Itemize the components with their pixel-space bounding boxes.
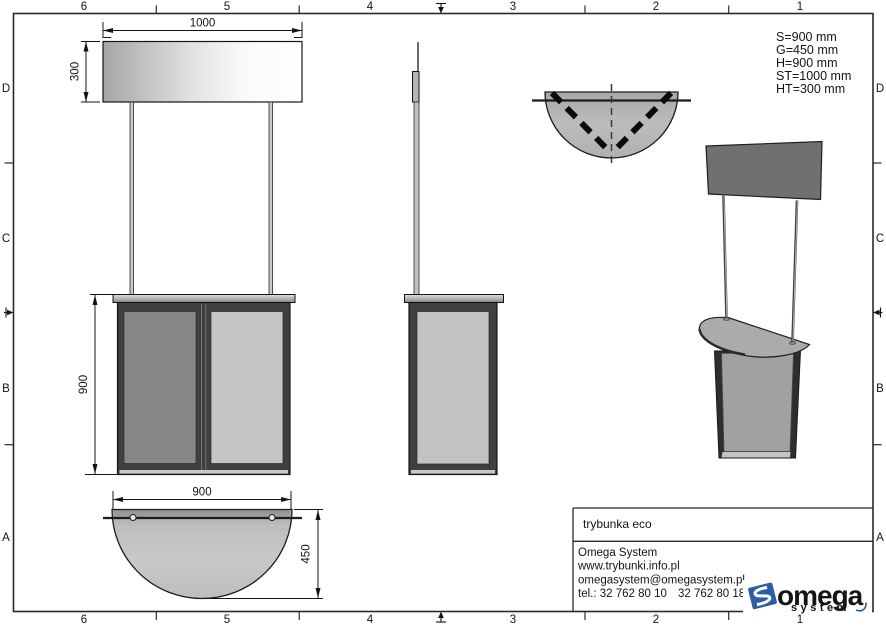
- grid-row-label: D: [876, 83, 884, 95]
- side-view: [405, 42, 504, 475]
- grid-col-label: 2: [653, 614, 659, 626]
- persp-pole-base-left: [724, 318, 730, 321]
- grid-col-label: 4: [367, 1, 374, 13]
- company-website: www.trybunki.info.pl: [577, 561, 680, 573]
- front-base-strip: [120, 470, 289, 474]
- centering-mark-left: [4, 308, 14, 318]
- centering-mark-top: [436, 4, 446, 14]
- top-plan-view: [532, 84, 691, 163]
- grid-row-label: B: [876, 383, 884, 395]
- spec-line: ST=1000 mm: [776, 69, 851, 83]
- base-half-disc: [112, 510, 292, 599]
- dim-header-height-lines: [81, 42, 100, 103]
- persp-header-panel: [706, 142, 822, 200]
- grid-col-label: 4: [367, 614, 374, 626]
- product-name: trybunka eco: [583, 517, 652, 531]
- base-top-band: [114, 510, 290, 518]
- grid-row-label: B: [2, 383, 10, 395]
- base-hole-right: [269, 515, 275, 521]
- front-panel-left: [124, 312, 196, 464]
- side-base-strip: [411, 470, 495, 474]
- spec-line: HT=300 mm: [776, 82, 845, 96]
- persp-base-strip: [722, 452, 791, 458]
- spec-line: S=900 mm: [776, 30, 837, 44]
- grid-row-label: D: [2, 83, 10, 95]
- front-counter-plate: [113, 295, 295, 303]
- technical-drawing-canvas: 6 5 4 3 2 1 6 5 4 3 2 1 D C B A D C B A …: [0, 0, 886, 626]
- front-view: 1000 300 900: [70, 18, 303, 475]
- centering-mark-right: [873, 308, 883, 318]
- dim-base-depth: 450: [301, 544, 313, 563]
- logo-subtext: system: [791, 602, 850, 614]
- side-counter-plate: [405, 295, 504, 303]
- grid-row-label: A: [2, 532, 10, 544]
- spec-line: G=450 mm: [776, 43, 838, 57]
- persp-pole-base-right: [790, 342, 796, 345]
- grid-col-label: 3: [510, 1, 516, 13]
- spec-list: S=900 mm G=450 mm H=900 mm ST=1000 mm HT…: [776, 30, 851, 96]
- side-pole: [414, 102, 419, 295]
- company-email: omegasystem@omegasystem.pl: [578, 575, 745, 587]
- grid-col-label: 5: [224, 614, 230, 626]
- grid-col-label: 2: [653, 1, 659, 13]
- dim-body-height: 900: [78, 375, 90, 394]
- grid-row-label: A: [876, 532, 884, 544]
- company-name: Omega System: [578, 547, 657, 559]
- company-phone-2: 32 762 80 18: [678, 588, 745, 600]
- grid-col-label: 5: [224, 1, 230, 13]
- centering-mark-bottom: [436, 612, 446, 623]
- front-header-panel: [103, 42, 302, 103]
- side-panel: [417, 312, 489, 465]
- base-hole-left: [130, 515, 136, 521]
- company-phone: tel.: 32 762 80 10: [578, 588, 667, 600]
- base-plan-view: 900 450: [103, 487, 323, 599]
- grid-col-label: 6: [81, 614, 87, 626]
- persp-body-front: [722, 353, 794, 452]
- perspective-view: [699, 142, 822, 459]
- dim-base-width: 900: [192, 487, 211, 499]
- drawing-sheet: 6 5 4 3 2 1 6 5 4 3 2 1 D C B A D C B A …: [0, 0, 886, 626]
- grid-col-label: 1: [797, 1, 803, 13]
- grid-col-label: 3: [510, 614, 516, 626]
- side-header-edge: [413, 72, 420, 103]
- omega-system-logo: omega system: [743, 580, 872, 614]
- dim-header-width: 1000: [190, 18, 216, 30]
- grid-row-label: C: [2, 233, 10, 245]
- grid-row-label: C: [876, 233, 884, 245]
- dim-header-height: 300: [70, 62, 82, 81]
- front-panel-right: [211, 312, 283, 464]
- front-pole-left: [130, 102, 134, 295]
- grid-col-label: 6: [81, 1, 87, 13]
- front-pole-right: [269, 102, 273, 295]
- grid-col-label: 1: [797, 614, 803, 626]
- spec-line: H=900 mm: [776, 56, 837, 70]
